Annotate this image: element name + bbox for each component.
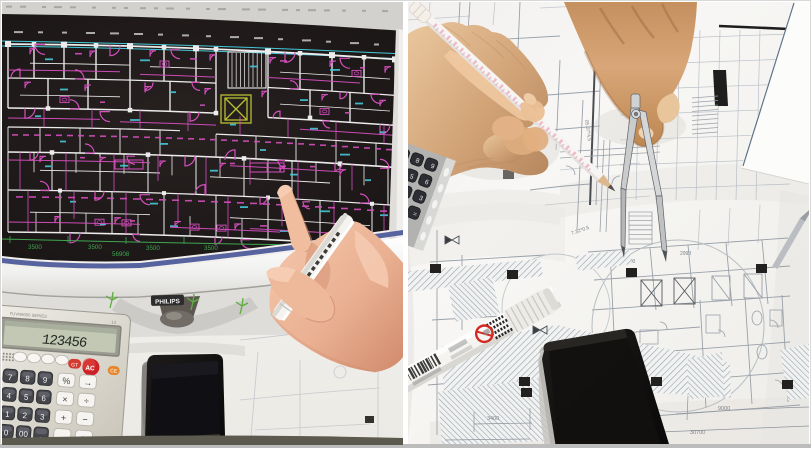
svg-text:2993: 2993 xyxy=(680,251,691,257)
svg-text:CE: CE xyxy=(110,368,118,375)
svg-text:→: → xyxy=(83,377,93,388)
svg-text:AC: AC xyxy=(85,365,95,373)
svg-text:−: − xyxy=(82,414,88,424)
svg-text:12: 12 xyxy=(111,320,117,325)
svg-text:+: + xyxy=(61,413,67,423)
svg-text:3400: 3400 xyxy=(487,416,499,422)
svg-text:123456: 123456 xyxy=(41,333,88,352)
svg-text:30700: 30700 xyxy=(690,430,705,436)
svg-text:×: × xyxy=(62,394,68,404)
svg-text:%: % xyxy=(62,376,71,387)
svg-text:3500: 3500 xyxy=(204,245,218,252)
svg-text:56908: 56908 xyxy=(112,251,130,258)
svg-text:PHILIPS: PHILIPS xyxy=(155,298,181,306)
svg-text:3500: 3500 xyxy=(28,244,42,251)
svg-text:3500: 3500 xyxy=(146,245,160,252)
svg-text:9000: 9000 xyxy=(718,406,730,412)
svg-text:3500: 3500 xyxy=(88,244,102,251)
svg-text:GT: GT xyxy=(71,362,78,369)
svg-text:÷: ÷ xyxy=(84,396,90,406)
